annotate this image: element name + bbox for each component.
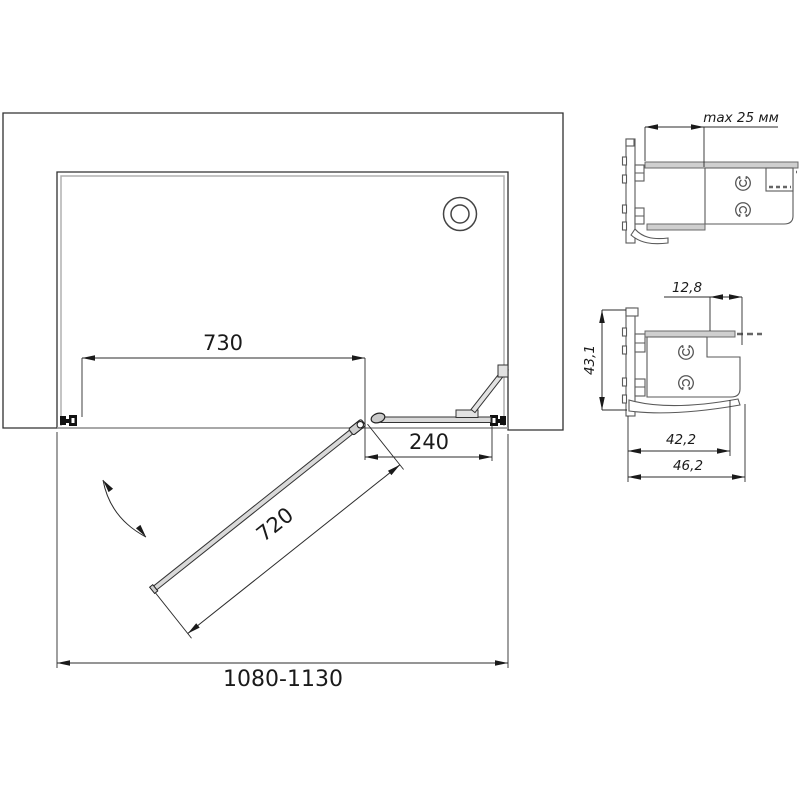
dim-total-width-label: 1080-1130 [223, 667, 343, 692]
door-panel [154, 430, 353, 590]
door-assembly: 720 [150, 418, 404, 639]
support-bar [456, 365, 508, 418]
dim-fixed-section: 240 [365, 425, 492, 461]
drain-icon [444, 198, 477, 231]
dim-overlap-label: 12,8 [672, 280, 702, 296]
profile-detail-top: max 25 мм [623, 110, 799, 244]
dim-wall-to-pivot: 730 [82, 331, 365, 460]
dim-height-label: 43,1 [582, 345, 598, 375]
wall-profile-left [60, 415, 77, 426]
technical-drawing: 720 730 240 [0, 0, 800, 800]
dim-width-outer-label: 46,2 [673, 458, 703, 474]
door-swing-arc [101, 478, 148, 538]
dim-height: 43,1 [582, 310, 627, 410]
detail-top-panel-profile [645, 162, 798, 230]
wall-profile-right [490, 415, 506, 426]
dim-adjustment-range-label: max 25 мм [703, 110, 779, 126]
detail-bottom-panel-profile [645, 331, 762, 397]
dim-door-width: 720 [155, 424, 403, 638]
dim-total-width: 1080-1130 [57, 432, 508, 692]
dim-width-inner-label: 42,2 [666, 432, 696, 448]
dim-fixed-section-label: 240 [409, 430, 449, 454]
dim-adjustment-range: max 25 мм [645, 110, 779, 167]
profile-detail-bottom: 12,8 43,1 42,2 46,2 [582, 280, 762, 482]
dim-wall-to-pivot-label: 730 [203, 331, 243, 355]
plan-view: 720 730 240 [3, 113, 563, 692]
shower-tray [61, 176, 504, 426]
wall-hatched [3, 113, 563, 430]
